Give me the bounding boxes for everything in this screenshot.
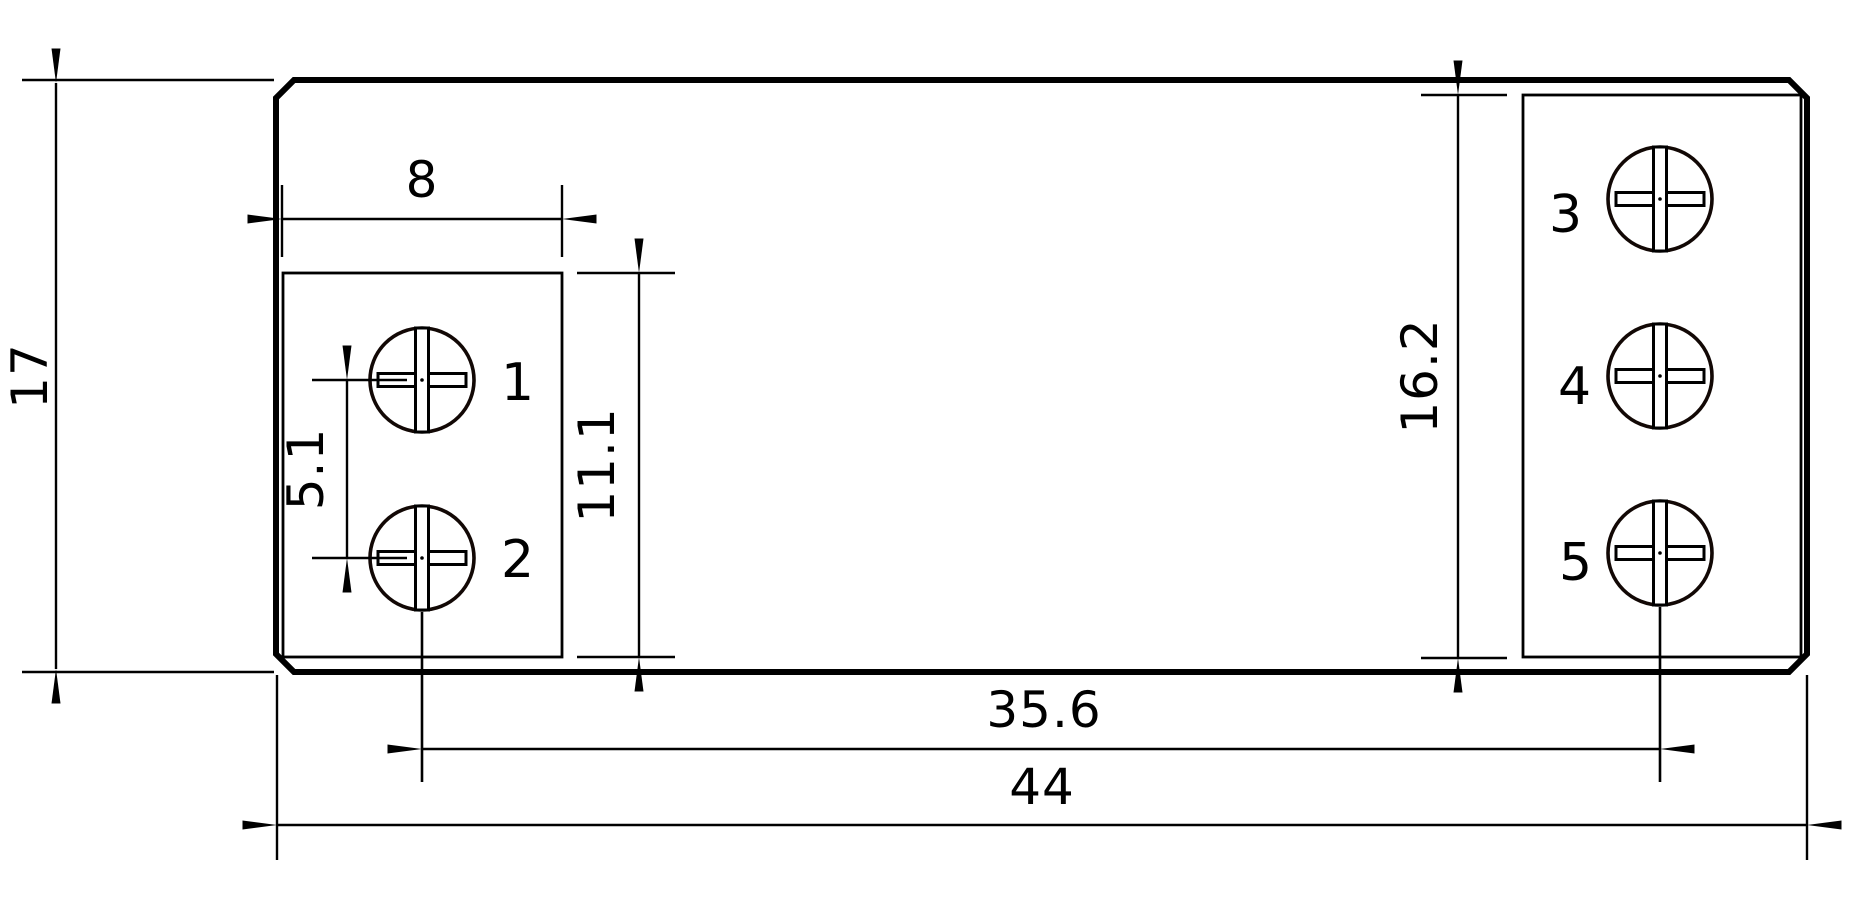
center-mark: [420, 378, 424, 382]
center-mark: [1658, 551, 1662, 555]
screw-terminal-2: [312, 506, 474, 782]
dimension-screw-span: 35.6: [422, 681, 1660, 749]
terminal-label-4: 4: [1558, 357, 1592, 417]
dimension-text-17: 17: [1, 343, 59, 409]
screw-terminal-5: [1608, 501, 1712, 782]
center-mark: [1658, 374, 1662, 378]
dimension-text-5-1: 5.1: [277, 428, 335, 511]
terminal-label-2: 2: [501, 530, 535, 590]
terminal-label-5: 5: [1559, 533, 1593, 593]
technical-drawing: 1 2 3 4 5 17 8 5.1 11.1 16.2 35.6: [0, 0, 1866, 901]
dimension-left-block-height: 11.1: [568, 273, 675, 657]
dimension-screw-pitch: 5.1: [277, 380, 347, 558]
dimension-text-44: 44: [1009, 758, 1075, 816]
technical-drawing-canvas: 1 2 3 4 5 17 8 5.1 11.1 16.2 35.6: [0, 0, 1866, 901]
dimension-text-8: 8: [406, 151, 439, 209]
center-mark: [1658, 197, 1662, 201]
terminal-label-1: 1: [501, 353, 535, 413]
terminal-label-3: 3: [1549, 185, 1583, 245]
screw-terminal-1: [312, 328, 474, 432]
dimension-right-block-height: 16.2: [1391, 95, 1507, 658]
dimension-text-35-6: 35.6: [986, 681, 1101, 739]
screw-terminal-4: [1608, 324, 1712, 428]
center-mark: [420, 556, 424, 560]
dimension-text-11-1: 11.1: [568, 407, 626, 522]
dimension-left-block-width: 8: [282, 151, 562, 257]
screw-terminal-3: [1608, 147, 1712, 251]
dimension-overall-height: 17: [1, 80, 274, 672]
dimension-text-16-2: 16.2: [1391, 318, 1449, 433]
